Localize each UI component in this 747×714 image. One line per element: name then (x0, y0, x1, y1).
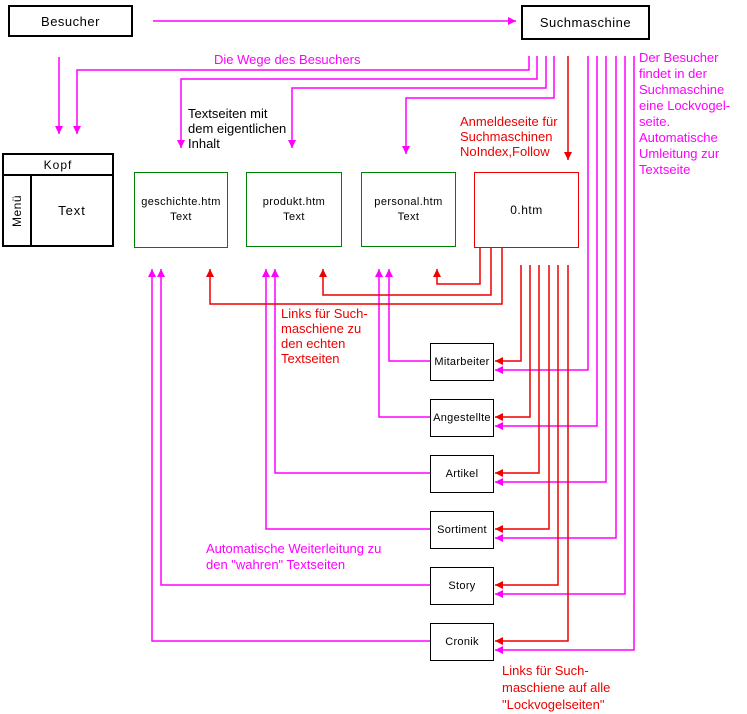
connector-lines (0, 0, 747, 714)
node-cronik: Cronik (430, 623, 494, 661)
node-personal-htm: personal.htm Text (361, 172, 456, 247)
arrow-artikel-to-produkt (275, 269, 430, 473)
node-suchmaschine: Suchmaschine (521, 5, 650, 40)
wireframe-menu-label: Menü (10, 194, 24, 226)
page-name: geschichte.htm (141, 195, 221, 210)
label-besucher-findet: Der Besucher findet in der Suchmaschine … (639, 50, 730, 178)
label-textseiten-inhalt: Textseiten mit dem eigentlichen Inhalt (188, 106, 286, 151)
label-links-echte-textseiten: Links für Such- maschiene zu den echten … (281, 306, 368, 366)
wireframe-menu-cell: Menü (4, 176, 32, 245)
node-story: Story (430, 567, 494, 605)
node-sortiment: Sortiment (430, 511, 494, 549)
arrow-0htm-to-sortiment (495, 265, 549, 529)
page-sub: Text (170, 210, 192, 225)
wireframe-kopf-cell: Kopf (4, 155, 112, 176)
node-artikel: Artikel (430, 455, 494, 493)
wireframe-page-layout: Kopf Menü Text (2, 153, 114, 247)
label-wege-des-besuchers: Die Wege des Besuchers (214, 52, 360, 67)
page-sub: Text (283, 210, 305, 225)
node-produkt-htm: produkt.htm Text (246, 172, 342, 247)
arrow-0htm-to-angestellte (495, 265, 530, 417)
arrow-mitarbeiter-to-personal (389, 269, 430, 361)
node-angestellte: Angestellte (430, 399, 494, 437)
page-name: produkt.htm (263, 195, 325, 210)
page-sub: Text (398, 210, 420, 225)
label-anmeldeseite: Anmeldeseite für Suchmaschinen NoIndex,F… (460, 114, 558, 159)
label-links-lockvogelseiten: Links für Such- maschiene auf alle "Lock… (502, 662, 610, 713)
node-besucher: Besucher (8, 5, 133, 37)
node-mitarbeiter: Mitarbeiter (430, 343, 494, 381)
arrow-0htm-to-produkt (323, 248, 491, 295)
page-name: personal.htm (374, 195, 442, 210)
wireframe-body: Menü Text (4, 176, 112, 245)
label-automatische-weiterleitung: Automatische Weiterleitung zu den "wahre… (206, 541, 381, 573)
diagram-canvas: Besucher Suchmaschine Kopf Menü Text ges… (0, 0, 747, 714)
arrow-angestellte-to-personal (379, 269, 430, 417)
wireframe-text-cell: Text (32, 176, 112, 245)
arrow-0htm-to-mitarbeiter (495, 265, 521, 361)
node-geschichte-htm: geschichte.htm Text (134, 172, 228, 248)
node-0htm: 0.htm (474, 172, 579, 248)
arrow-0htm-to-personal (437, 248, 480, 284)
